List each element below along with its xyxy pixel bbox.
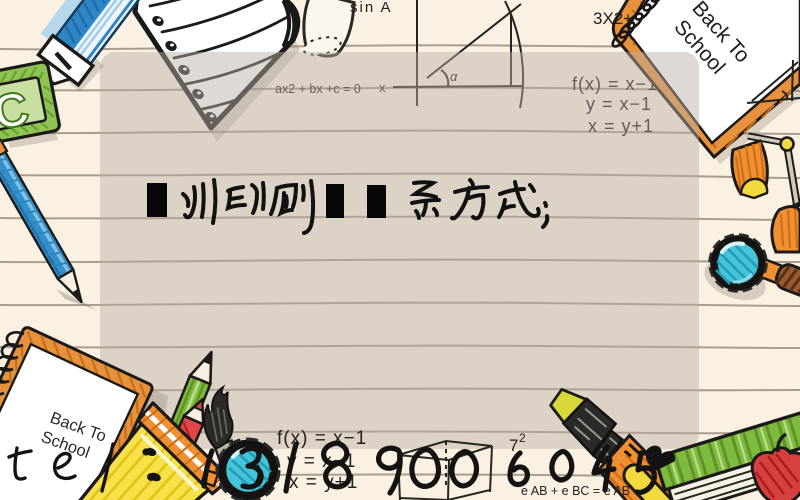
svg-text:f(x) = x−1: f(x) = x−1 (277, 428, 367, 449)
svg-text:e AB + e BC = e AB: e AB + e BC = e AB (521, 484, 630, 498)
svg-text:sin A: sin A (350, 0, 393, 16)
svg-text:2: 2 (519, 431, 526, 445)
svg-text:3X2+: 3X2+ (593, 9, 633, 28)
